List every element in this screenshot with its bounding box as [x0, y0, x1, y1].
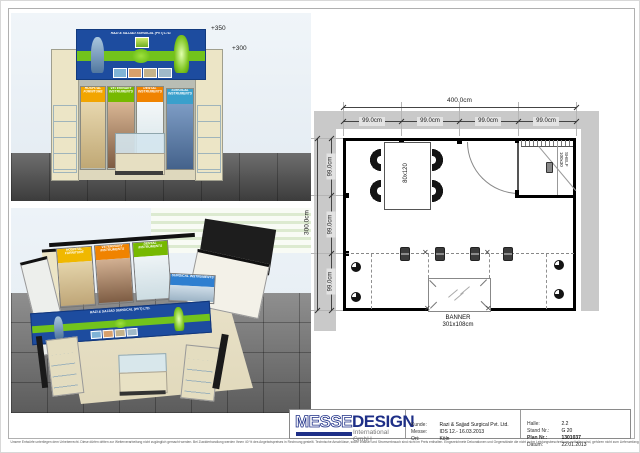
counter-plinth: [120, 390, 166, 396]
banner-header-text: DENTAL INSTRUMENTS: [137, 87, 163, 94]
iso-banner-surgical: SURGICAL INSTRUMENTS: [168, 273, 215, 304]
photo-thumb-3: [114, 329, 126, 338]
banner-header-text: HOSPITAL FURNITURE: [81, 87, 105, 94]
footer-disclaimer: Unsere Entwürfe unterliegen dem Urheberr…: [11, 441, 632, 444]
title-block: MESSEDESIGN International GmbH Kunde: Ra…: [289, 409, 631, 439]
banner-header: VETERINARY INSTRUMENTS: [108, 87, 134, 102]
drawing-sheet: RAZI & SAJJAD SURGICAL (PVT) LTD. HOSPIT…: [0, 0, 640, 453]
logo-bar: [296, 432, 352, 436]
banner-header-text: SURGICAL INSTRUMENTS: [171, 274, 215, 280]
banner-header-text: VETERINARY INSTRUMENTS: [108, 87, 134, 94]
fascia-title-text: RAZI & SAJJAD SURGICAL (PVT) LTD.: [77, 32, 205, 35]
banner-photo: [81, 102, 105, 168]
front-right-showcase-glass: [184, 359, 213, 396]
front-left-showcase-glass: [50, 353, 78, 390]
surgeon-figure: [91, 37, 104, 73]
photo-thumb-2: [102, 330, 114, 339]
title-block-divider: [520, 410, 521, 438]
banner-photo: [134, 255, 171, 300]
banner-header: DENTAL INSTRUMENTS: [137, 87, 163, 102]
iso-banner-veterinary: VETERINARY INSTRUMENTS: [94, 243, 134, 305]
logo-messe-text: MESSE: [295, 412, 352, 431]
banner-photo: [58, 261, 95, 306]
counter-plinth: [115, 171, 163, 175]
fascia-panel: RAZI & SAJJAD SURGICAL (PVT) LTD.: [76, 29, 206, 80]
banner-header-text: HOSPITAL FURNITURE: [57, 247, 91, 256]
banner-header-text: SURGICAL INSTRUMENTS: [167, 89, 193, 96]
right-showcase-glass: [197, 105, 221, 173]
surgeon-figure: [53, 316, 64, 339]
center-counter: [118, 353, 165, 397]
iso-banner-dental: DENTAL INSTRUMENTS: [132, 240, 172, 302]
front-elevation-render: RAZI & SAJJAD SURGICAL (PVT) LTD. HOSPIT…: [11, 13, 311, 201]
banner-header: HOSPITAL FURNITURE: [81, 87, 105, 102]
photo-thumb-4: [158, 68, 172, 78]
fascia-band-bump: [132, 49, 150, 63]
banner-photo: [167, 104, 193, 169]
banner-surgical-instruments: SURGICAL INSTRUMENTS: [166, 88, 194, 170]
banner-header-text: DENTAL INSTRUMENTS: [133, 241, 167, 250]
photo-thumb-1: [113, 68, 127, 78]
photo-thumb-3: [143, 68, 157, 78]
footer-disclaimer-text: Unsere Entwürfe unterliegen dem Urheberr…: [11, 441, 640, 444]
height-marker-300: +300: [232, 45, 247, 52]
banner-photo: [169, 285, 214, 302]
company-logo: MESSEDESIGN International GmbH: [295, 412, 403, 436]
iso-banner-hospital: HOSPITAL FURNITURE: [56, 246, 96, 308]
banner-photo: [96, 258, 133, 303]
anatomy-figure: [174, 35, 189, 73]
photo-thumb-1: [90, 330, 102, 339]
fascia-band-bump: [114, 319, 128, 329]
counter-glass-top: [115, 133, 165, 155]
photo-thumb-4: [126, 328, 138, 337]
logo-badge: [135, 37, 149, 48]
height-marker-350: +350: [211, 25, 226, 32]
banner-header: SURGICAL INSTRUMENTS: [167, 89, 193, 104]
left-showcase-glass: [53, 105, 77, 173]
photo-thumb-2: [128, 68, 142, 78]
isometric-render: HOSPITAL FURNITURE VETERINARY INSTRUMENT…: [11, 208, 311, 413]
banner-hospital-furniture: HOSPITAL FURNITURE: [80, 86, 106, 170]
banner-header-text: VETERINARY INSTRUMENTS: [95, 244, 129, 253]
